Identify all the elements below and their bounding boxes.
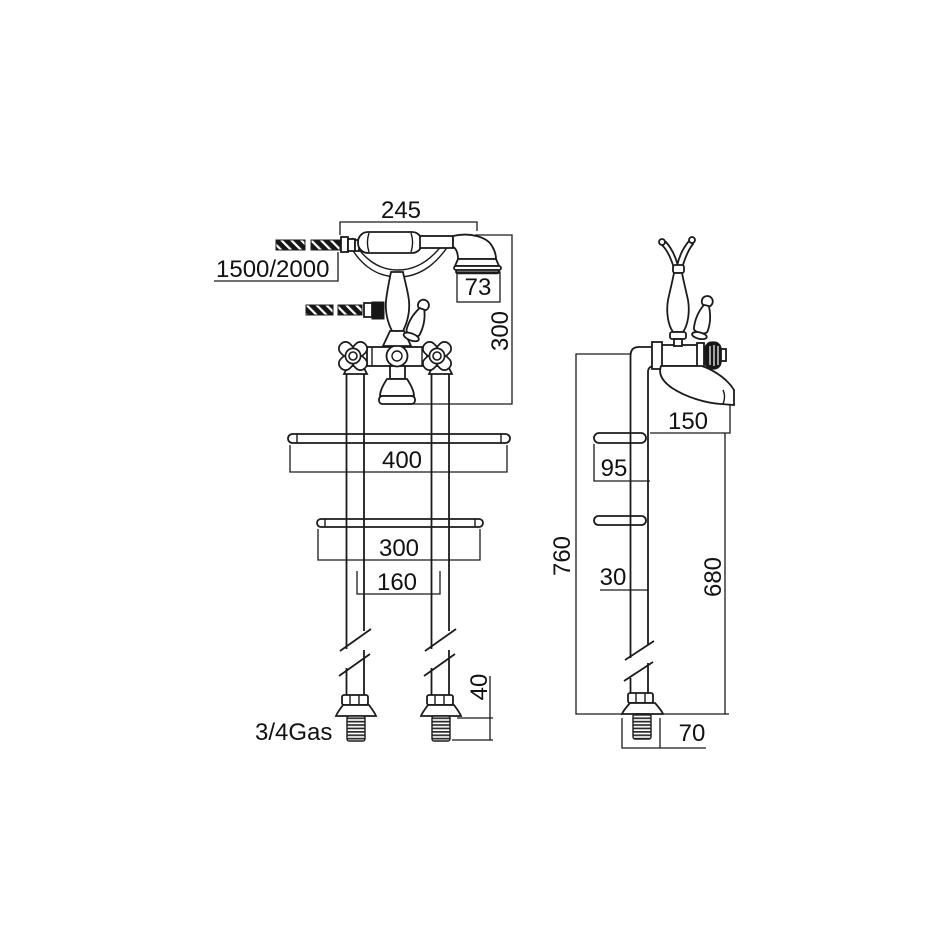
dim-label-30: 30 [600, 564, 627, 591]
floor-connector-left [336, 695, 376, 741]
side-cradle [659, 237, 695, 273]
dimension-overall-height: 760 [549, 354, 631, 714]
dim-label-40: 40 [466, 674, 493, 701]
side-view [594, 237, 734, 739]
hose-nut [372, 302, 384, 319]
dimension-stay-offset-upper: 95 [594, 444, 650, 482]
side-floor-connector [622, 693, 663, 739]
technical-drawing: 245 1500/2000 73 300 400 300 160 [0, 0, 950, 950]
dim-label-gas: 3/4Gas [255, 719, 332, 746]
hose-upper-segment1 [276, 240, 305, 250]
dimension-hose-length: 1500/2000 [214, 252, 338, 283]
dim-label-hose: 1500/2000 [216, 256, 329, 283]
side-stay-upper [594, 433, 646, 443]
dim-label-300-stay: 300 [379, 535, 419, 562]
dim-label-400: 400 [382, 447, 422, 474]
wall-stay-short [317, 519, 483, 527]
dimension-head-diameter: 73 [457, 272, 500, 302]
dimension-spout-height: 680 [663, 433, 729, 714]
dim-label-73: 73 [465, 274, 492, 301]
wall-stay-long [288, 434, 510, 443]
floor-connector-right [421, 695, 461, 741]
dimension-thread-length: 40 [452, 674, 493, 740]
side-body [652, 342, 726, 369]
standpipe-right [424, 374, 456, 696]
side-spindle [667, 273, 689, 346]
dimension-stay-offset-lower: 30 [600, 564, 648, 591]
dimension-spout-projection: 150 [650, 404, 730, 435]
dimensions: 245 1500/2000 73 300 400 300 160 [214, 197, 730, 748]
drawing-canvas: 245 1500/2000 73 300 400 300 160 [0, 0, 950, 950]
dimension-stay-short: 300 [318, 529, 480, 562]
dim-label-95: 95 [601, 455, 628, 482]
center-boss [387, 346, 408, 367]
dim-label-245: 245 [381, 197, 421, 224]
dim-label-150: 150 [668, 408, 708, 435]
hose-upper-segment2 [311, 240, 340, 250]
side-stay-lower [594, 516, 646, 525]
standpipe-left [339, 374, 371, 696]
dim-label-760: 760 [549, 536, 576, 576]
spout [660, 366, 734, 405]
dimension-pipe-centres: 160 [357, 569, 440, 596]
dimension-connection-thread: 3/4Gas [255, 719, 332, 746]
front-view [276, 232, 510, 741]
dim-label-160: 160 [377, 569, 417, 596]
handset-head [453, 235, 496, 259]
dim-label-70: 70 [679, 720, 706, 747]
side-lever [691, 294, 715, 340]
outlet-bell [380, 379, 414, 396]
dim-label-300-riser: 300 [487, 311, 514, 351]
dimension-handset-length: 245 [340, 197, 477, 235]
dim-label-680: 680 [700, 557, 727, 597]
hose-lower [306, 302, 384, 319]
dimension-stay-long: 400 [290, 445, 507, 474]
